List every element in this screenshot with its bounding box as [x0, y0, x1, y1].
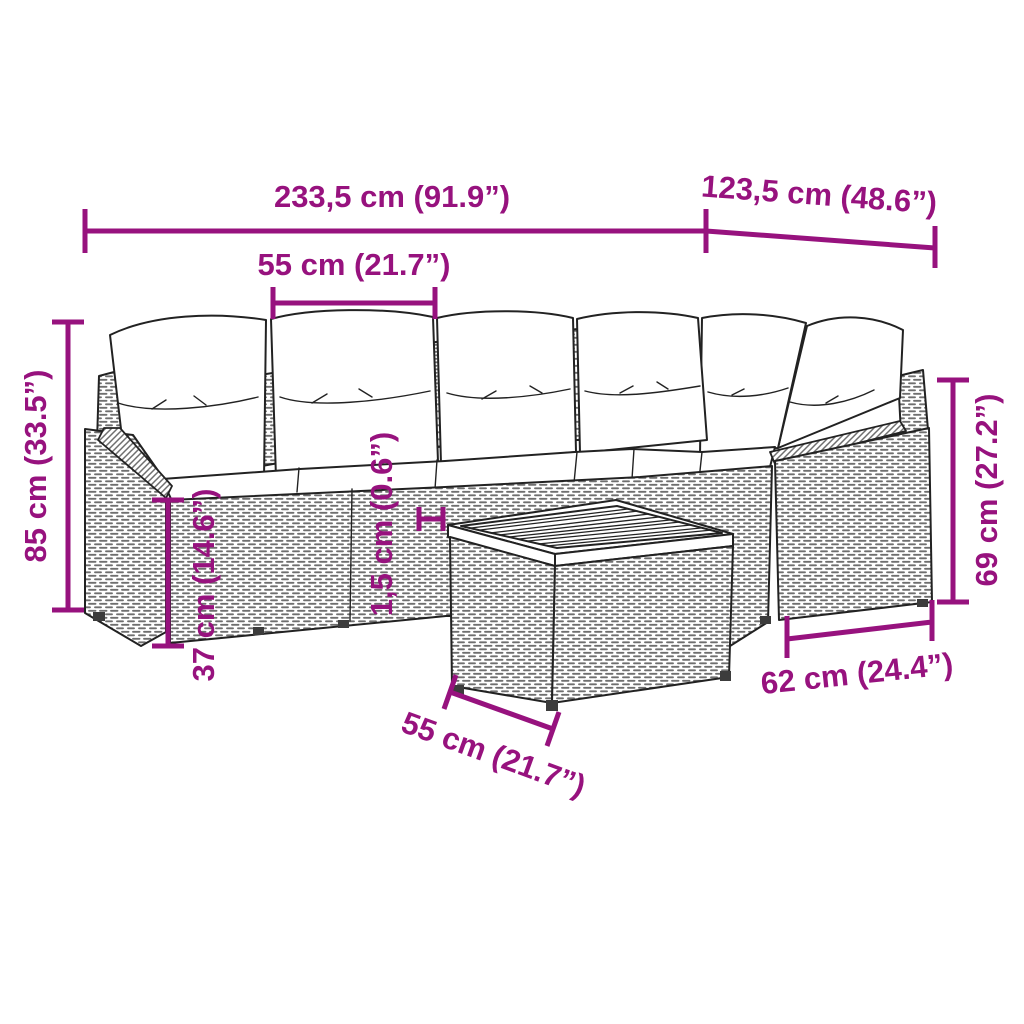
table-body-right — [552, 546, 733, 703]
foot — [720, 671, 731, 681]
coffee-table — [448, 500, 733, 711]
foot — [338, 620, 349, 628]
dim-right-depth: 123,5 cm (48.6”) — [700, 168, 938, 268]
right-armrest — [770, 421, 932, 620]
dim-label-tabletop-thickness: 1,5 cm (0.6”) — [364, 432, 399, 616]
dim-line — [52, 322, 84, 610]
dim-line — [706, 226, 935, 268]
dim-total-height: 85 cm (33.5”) — [18, 322, 84, 610]
foot — [546, 700, 558, 711]
dim-label-total-width: 233,5 cm (91.9”) — [274, 179, 510, 214]
dim-seat-module-width: 55 cm (21.7”) — [258, 247, 451, 319]
dim-label-total-height: 85 cm (33.5”) — [18, 370, 53, 563]
dim-label-seat-module-width: 55 cm (21.7”) — [258, 247, 451, 282]
table-body-left — [450, 537, 555, 703]
foot — [93, 612, 105, 621]
foot — [917, 599, 928, 607]
diagram-canvas: 233,5 cm (91.9”) 123,5 cm (48.6”) 55 cm … — [0, 0, 1024, 1024]
dim-label-armrest-height: 69 cm (27.2”) — [969, 394, 1004, 587]
dim-line — [937, 380, 969, 602]
dim-total-width: 233,5 cm (91.9”) — [85, 179, 706, 253]
foot — [253, 627, 264, 635]
right-armrest-panel — [775, 428, 932, 620]
back-cushion-4 — [577, 312, 707, 453]
dim-label-table-width: 55 cm (21.7”) — [397, 705, 590, 804]
foot — [760, 616, 771, 624]
product-dimension-diagram: 233,5 cm (91.9”) 123,5 cm (48.6”) 55 cm … — [0, 0, 1024, 1024]
dim-label-right-depth: 123,5 cm (48.6”) — [700, 168, 938, 220]
dim-armrest-height: 69 cm (27.2”) — [937, 380, 1004, 602]
dim-label-seat-height: 37 cm (14.6”) — [186, 489, 221, 682]
back-cushion-3 — [437, 311, 576, 464]
